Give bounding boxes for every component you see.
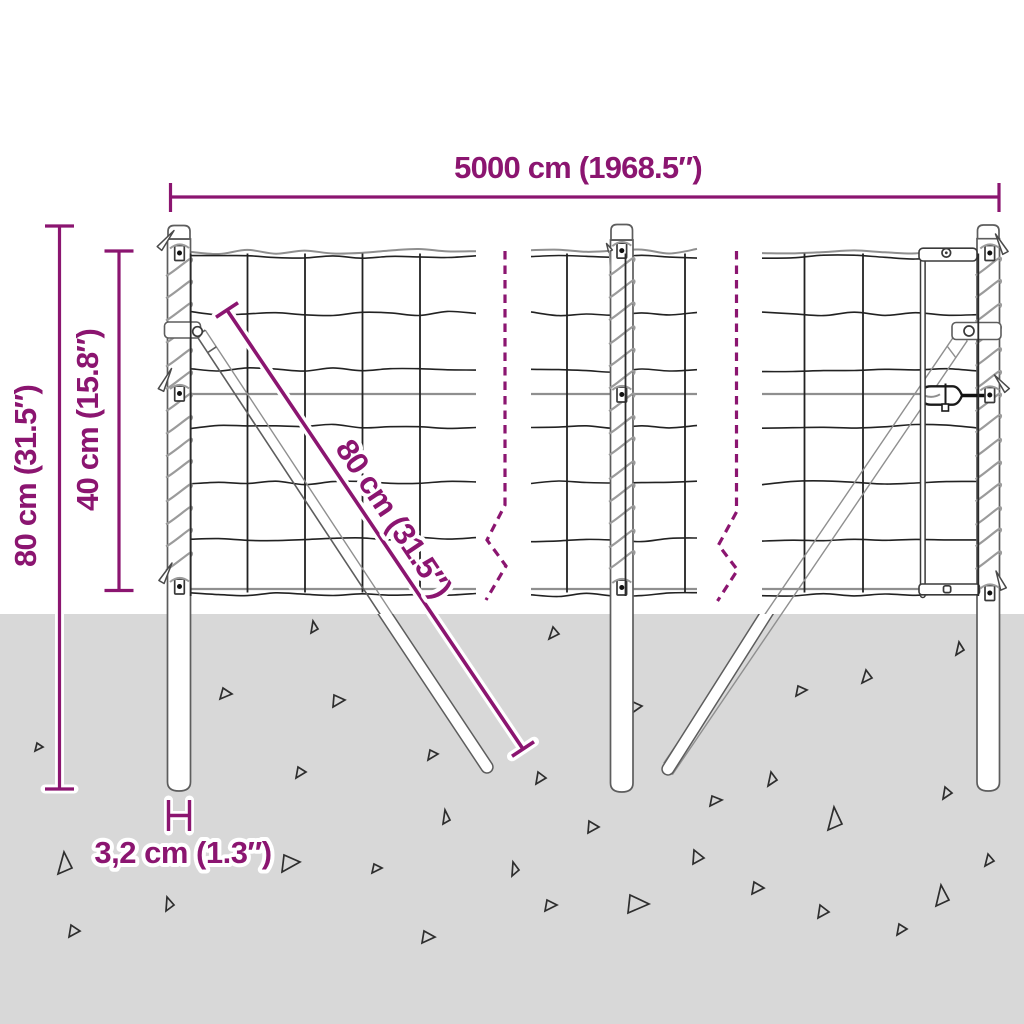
- svg-text:3,2 cm (1.3″): 3,2 cm (1.3″): [94, 835, 271, 870]
- svg-text:5000 cm (1968.5″): 5000 cm (1968.5″): [454, 150, 702, 185]
- svg-text:40 cm (15.8″): 40 cm (15.8″): [70, 329, 105, 511]
- svg-text:80 cm (31.5″): 80 cm (31.5″): [8, 385, 43, 567]
